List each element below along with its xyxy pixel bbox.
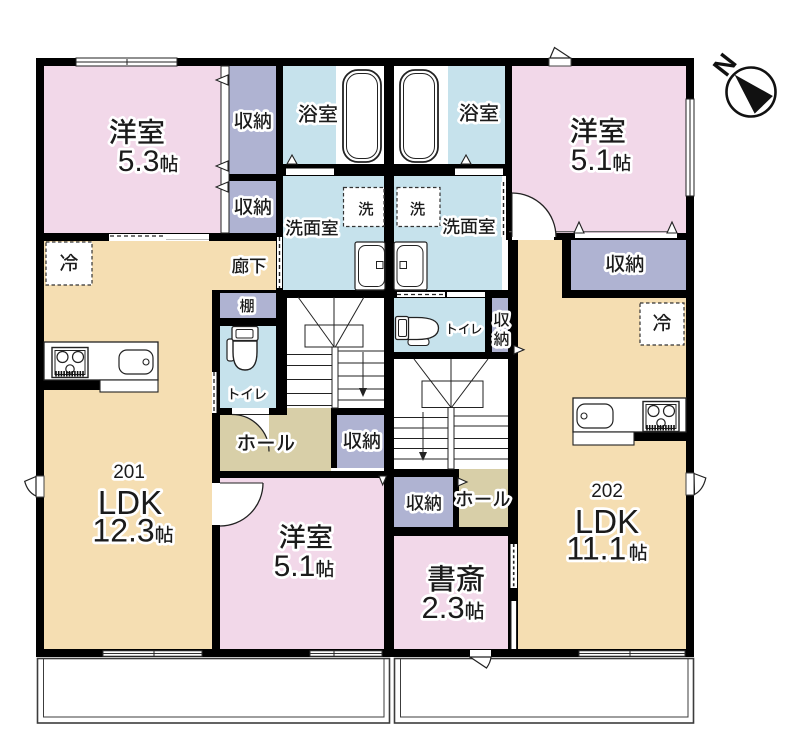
svg-text:12.3: 12.3 <box>92 513 154 549</box>
svg-text:2.3: 2.3 <box>422 590 465 625</box>
svg-text:11.1: 11.1 <box>566 531 626 567</box>
svg-text:201: 201 <box>113 462 145 483</box>
svg-text:5.1: 5.1 <box>571 144 613 177</box>
svg-text:5.1: 5.1 <box>274 550 316 583</box>
svg-text:5.3: 5.3 <box>118 145 160 178</box>
svg-text:202: 202 <box>591 481 623 502</box>
